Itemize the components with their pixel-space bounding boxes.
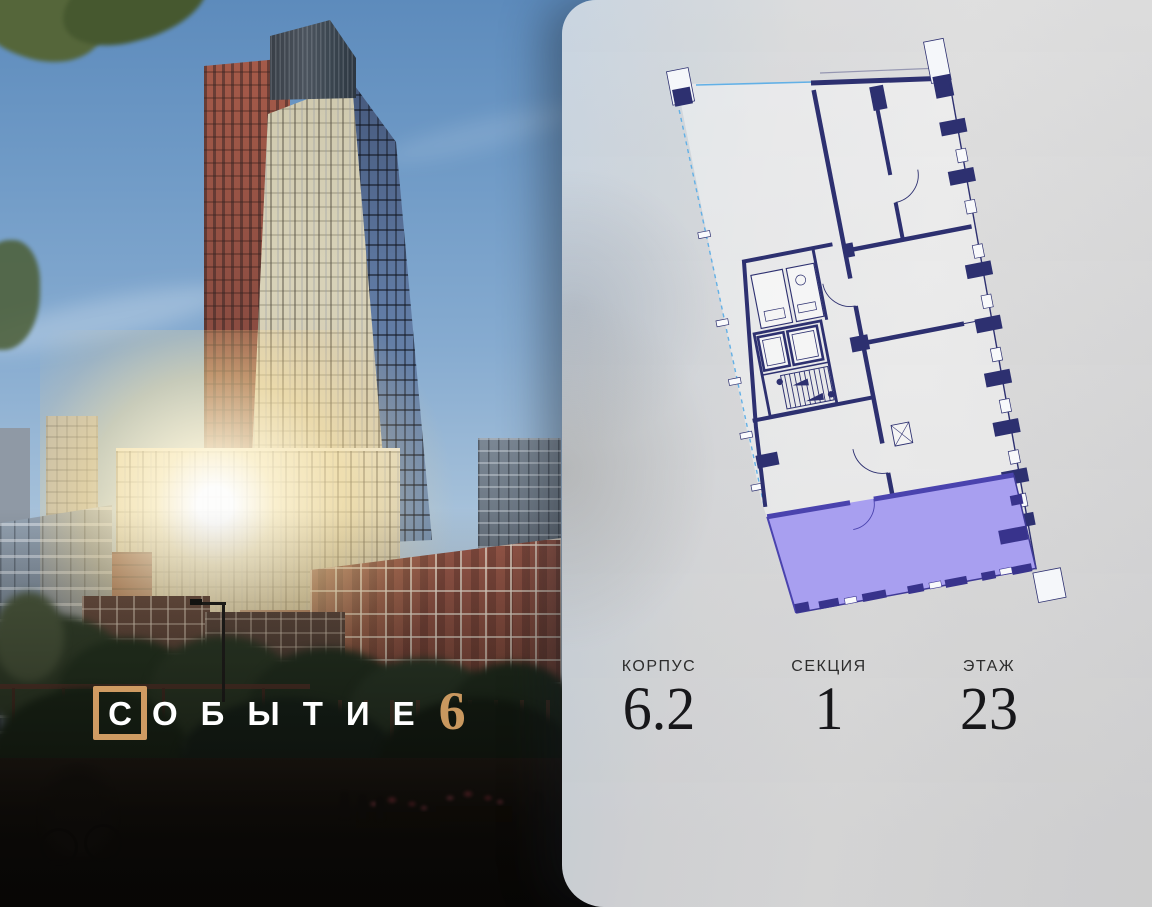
corpus-value: 6.2	[579, 678, 739, 739]
street-lamp-head	[190, 599, 202, 605]
person-silhouette	[534, 792, 543, 820]
gray-building-right	[478, 438, 561, 548]
bike-wheel	[40, 828, 78, 866]
info-corpus: КОРПУС 6.2	[579, 658, 739, 738]
closet	[891, 422, 913, 446]
logo-wordmark: ОБЫТИЕ	[152, 697, 438, 730]
elevator-shaft	[787, 326, 823, 365]
unit-info-panel: КОРПУС 6.2 СЕКЦИЯ 1 ЭТАЖ 23	[562, 0, 1152, 907]
logo-number: 6	[439, 684, 466, 738]
info-floor: ЭТАЖ 23	[909, 658, 1069, 738]
planter	[356, 812, 440, 828]
brand-logo: С ОБЫТИЕ 6	[93, 686, 466, 740]
person-silhouette	[376, 796, 384, 820]
balcony-line	[820, 68, 940, 73]
planter	[436, 806, 512, 822]
section-value: 1	[749, 678, 909, 739]
background-building	[0, 428, 30, 528]
bathrooms	[751, 263, 824, 328]
info-section: СЕКЦИЯ 1	[749, 658, 909, 738]
floor-plan	[562, 0, 1152, 907]
floor-value: 23	[909, 678, 1069, 739]
logo-boxed-letter: С	[108, 697, 132, 730]
corner-column-topleft	[666, 68, 694, 108]
person-silhouette	[340, 792, 349, 818]
person-silhouette	[358, 794, 367, 820]
bike-wheel	[84, 824, 122, 862]
logo-letter-box: С	[93, 686, 147, 740]
building-photo: С ОБЫТИЕ 6	[0, 0, 660, 907]
street-lamp-arm	[198, 602, 226, 605]
screenshot-root: С ОБЫТИЕ 6	[0, 0, 1152, 907]
corner-column-bottomright	[1033, 568, 1066, 603]
